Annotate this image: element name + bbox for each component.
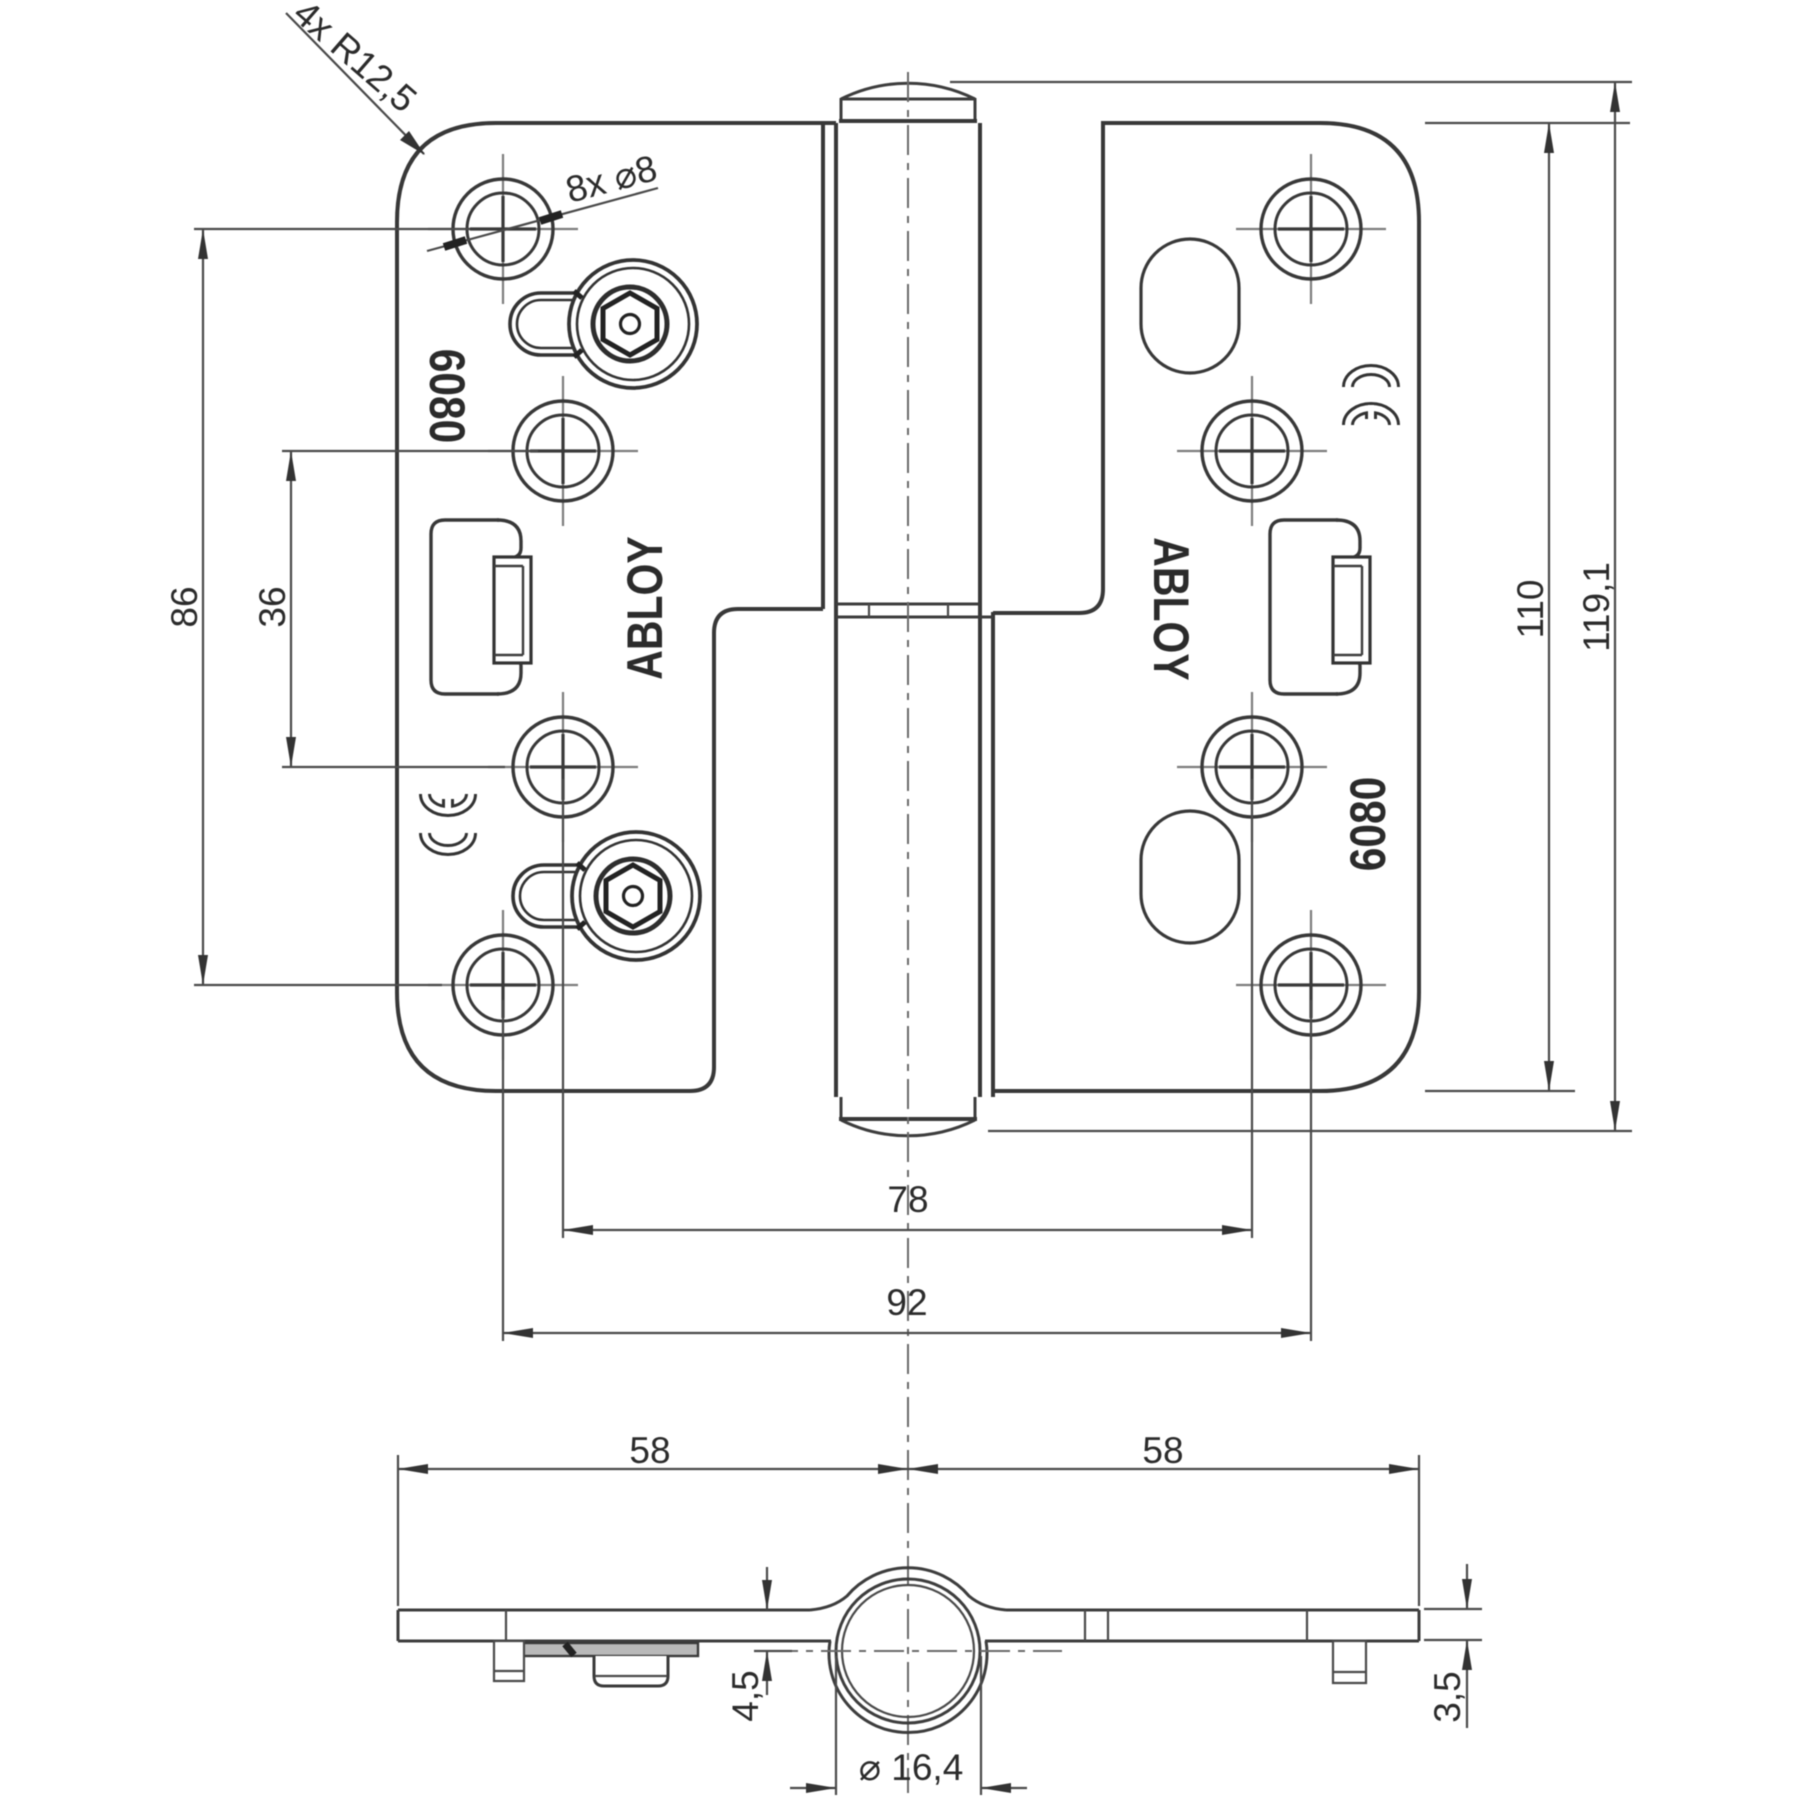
svg-text:⌀ 16,4: ⌀ 16,4	[859, 1747, 964, 1788]
svg-text:3,5: 3,5	[1427, 1671, 1468, 1722]
svg-text:6080: 6080	[1340, 777, 1396, 872]
svg-text:6080: 6080	[419, 349, 475, 444]
svg-text:119,1: 119,1	[1576, 562, 1617, 652]
svg-text:86: 86	[164, 586, 205, 627]
svg-text:92: 92	[886, 1282, 927, 1323]
svg-text:ABLOY: ABLOY	[617, 536, 673, 679]
svg-text:36: 36	[252, 586, 293, 627]
svg-text:110: 110	[1510, 580, 1551, 639]
svg-text:58: 58	[629, 1430, 670, 1471]
svg-text:58: 58	[1142, 1430, 1183, 1471]
svg-text:78: 78	[887, 1179, 928, 1220]
svg-text:4,5: 4,5	[725, 1670, 766, 1721]
svg-text:ABLOY: ABLOY	[1143, 537, 1199, 680]
